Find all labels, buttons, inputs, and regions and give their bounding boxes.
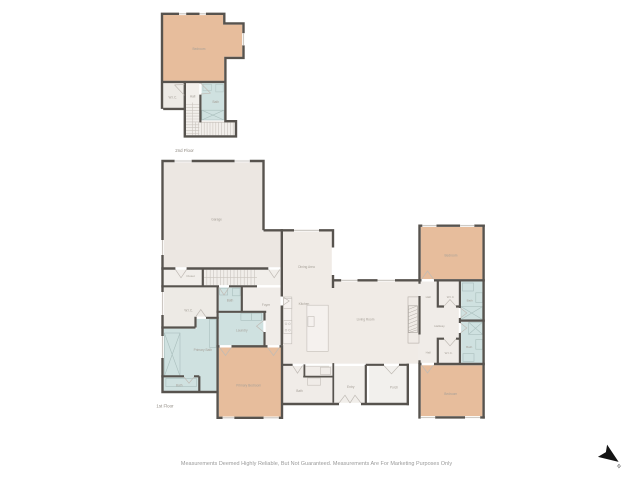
svg-text:W.I.C.: W.I.C.: [445, 351, 453, 355]
svg-text:Porch: Porch: [390, 386, 399, 390]
svg-text:Dining Area: Dining Area: [298, 265, 315, 269]
svg-text:Hallway: Hallway: [434, 324, 445, 328]
svg-text:Bedroom: Bedroom: [193, 47, 206, 51]
svg-text:W.I.C: W.I.C: [447, 295, 455, 299]
svg-text:Bedroom: Bedroom: [444, 392, 457, 396]
svg-text:Bath: Bath: [467, 299, 474, 303]
svg-text:W.I.C.: W.I.C.: [168, 96, 177, 100]
svg-text:Entry: Entry: [347, 385, 355, 389]
svg-text:Foyer: Foyer: [262, 303, 271, 307]
svg-text:Measurements Deemed Highly Rel: Measurements Deemed Highly Reliable, But…: [181, 461, 452, 467]
svg-text:Bath: Bath: [176, 384, 183, 388]
svg-text:Laundry: Laundry: [236, 329, 248, 333]
svg-text:1st Floor: 1st Floor: [156, 404, 174, 409]
svg-text:2nd Floor: 2nd Floor: [175, 148, 194, 153]
svg-text:Primary Bath: Primary Bath: [194, 348, 213, 352]
svg-text:Hall: Hall: [190, 95, 196, 99]
svg-text:Hall: Hall: [426, 351, 432, 355]
svg-text:Primary Bedroom: Primary Bedroom: [236, 384, 261, 388]
svg-text:Bedroom: Bedroom: [445, 254, 458, 258]
svg-text:Bath: Bath: [227, 299, 234, 303]
svg-text:Closet: Closet: [186, 274, 195, 278]
svg-text:Hall: Hall: [426, 295, 432, 299]
svg-text:Bath: Bath: [213, 100, 220, 104]
svg-text:Living Room: Living Room: [357, 318, 375, 322]
svg-text:Bath: Bath: [466, 345, 473, 349]
svg-text:Garage: Garage: [211, 218, 222, 222]
svg-text:W.I.C.: W.I.C.: [184, 309, 193, 313]
svg-text:Bath: Bath: [296, 389, 303, 393]
